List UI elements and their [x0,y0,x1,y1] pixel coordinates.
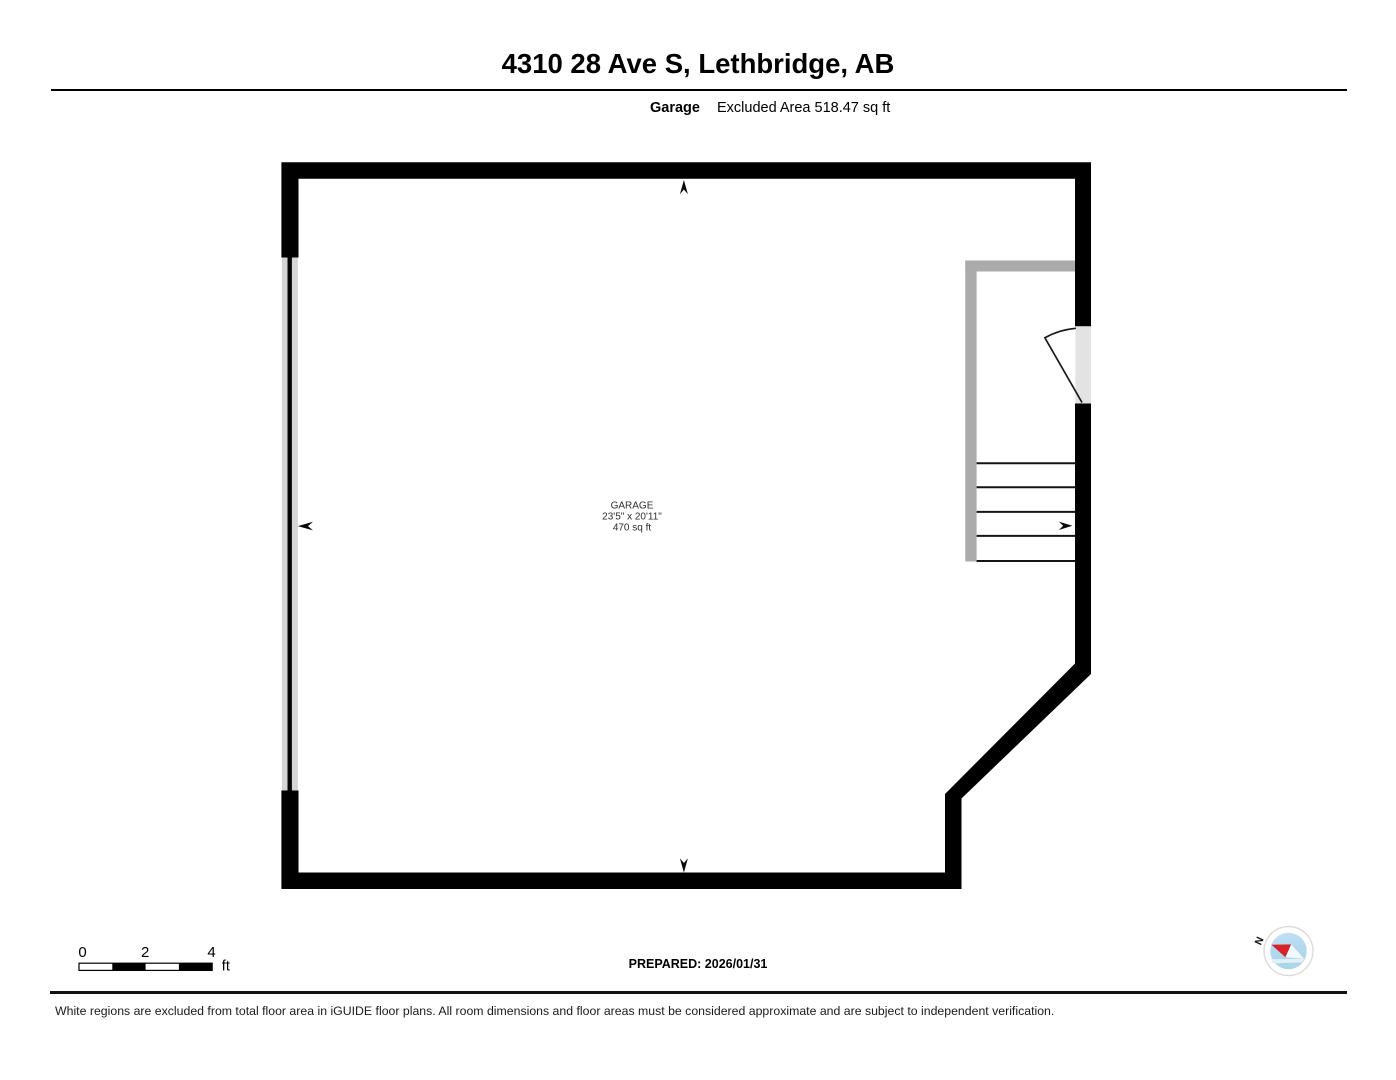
svg-text:470 sq ft: 470 sq ft [613,523,652,534]
svg-text:23'5" x 20'11": 23'5" x 20'11" [602,512,662,523]
svg-text:GARAGE: GARAGE [611,501,654,512]
